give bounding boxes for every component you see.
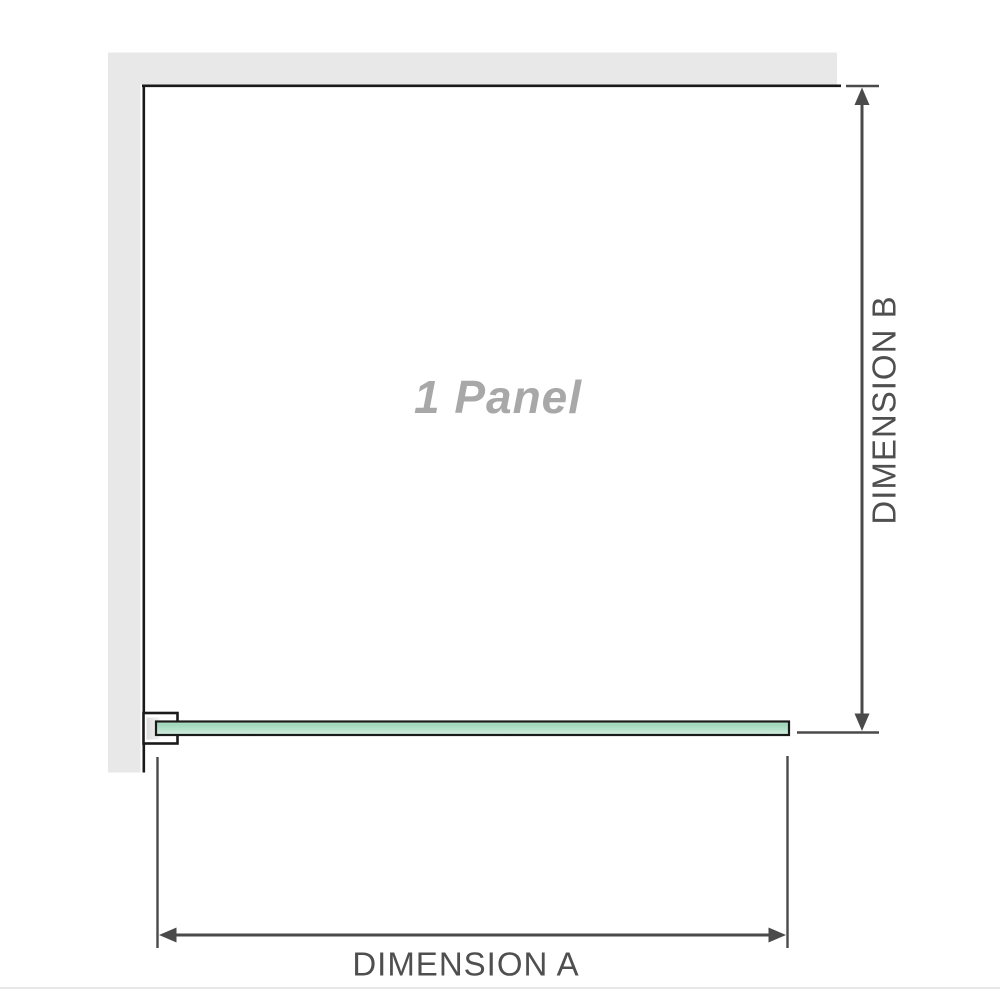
dimension-a-arrow-left-icon: [159, 928, 177, 943]
dimension-b-arrow-up-icon: [855, 88, 870, 106]
glass-panel: [156, 722, 789, 736]
dimension-a-label: DIMENSION A: [352, 946, 579, 983]
dimension-b-label: DIMENSION B: [866, 295, 903, 524]
dimension-b-arrow-down-icon: [855, 714, 870, 732]
wall-left: [108, 53, 141, 773]
panel-count-label: 1 Panel: [414, 371, 582, 423]
dimension-a-arrow-right-icon: [769, 928, 787, 943]
panel-diagram-canvas: DIMENSION B DIMENSION A 1 Panel: [0, 0, 1000, 1000]
wall-top: [108, 53, 837, 85]
panel-diagram: DIMENSION B DIMENSION A 1 Panel: [0, 0, 1000, 1000]
